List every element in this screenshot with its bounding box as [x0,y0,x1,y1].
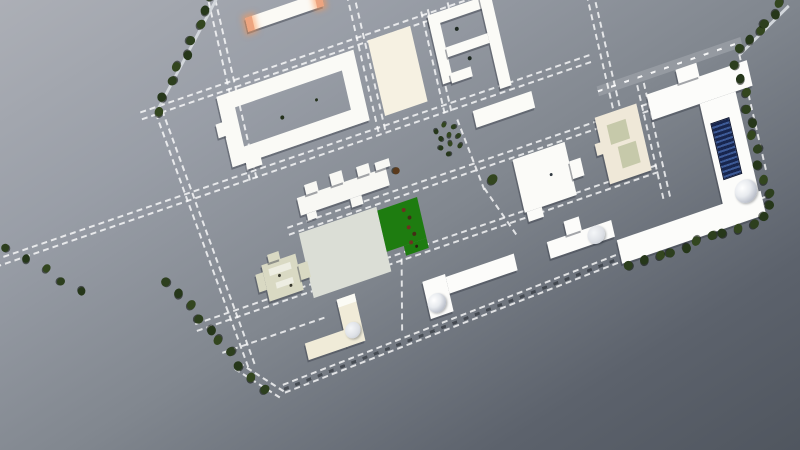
road-south-field-street [401,258,410,331]
tree [456,142,461,148]
tree-west-tree-row [160,276,171,288]
road-east-street [586,0,623,118]
tree-far-west-tree-row [0,243,9,253]
tree [445,131,452,138]
p-block-building-part-3[interactable] [446,33,490,57]
tree [455,132,461,138]
ground-dot [467,56,472,61]
l-building-dome-part-0[interactable] [446,254,518,294]
road-center-street-curve-1 [456,116,491,190]
tree-northeast-tree-row [743,33,755,46]
tree-northeast-tree-row [773,0,784,9]
site-plan-viewport[interactable] [0,0,800,450]
p-block-building-part-4[interactable] [450,66,473,83]
north-bar-building-part-0[interactable] [245,0,324,32]
tree [432,128,438,134]
tree-far-west-tree-row [43,264,51,273]
tree [444,150,451,157]
tree-west-tree-row [187,300,196,310]
tree-east-tree-column [758,173,770,186]
tree [449,123,456,130]
tree [437,144,443,151]
rotated-site-plane [0,0,1,1]
tree-south-wing-tree-row [656,251,665,261]
tree-south-wing-tree-row [717,228,726,238]
tree-east-tree-column [765,188,776,199]
tree-south-wing-tree-row [681,242,692,253]
tree-northwest-tree-row [197,20,206,30]
tree-brown [391,165,400,175]
tree-far-west-tree-row [77,286,87,296]
tree-east-tree-column [753,160,762,170]
tree [446,140,453,147]
l-building-west-part-1[interactable] [305,330,349,360]
tree-west-tree-row [212,334,223,346]
tree-northeast-tree-row [770,9,781,20]
tree [487,174,497,185]
ground-dot [454,26,459,31]
tree [440,121,446,128]
tree-west-tree-row [233,360,242,370]
tree-northwest-tree-row [157,92,166,102]
tree-south-wing-tree-row [622,259,633,271]
tree-west-tree-row [172,287,184,300]
tree-far-west-tree-row [55,275,66,287]
tree-south-wing-tree-row [749,218,760,229]
tree [438,135,443,141]
